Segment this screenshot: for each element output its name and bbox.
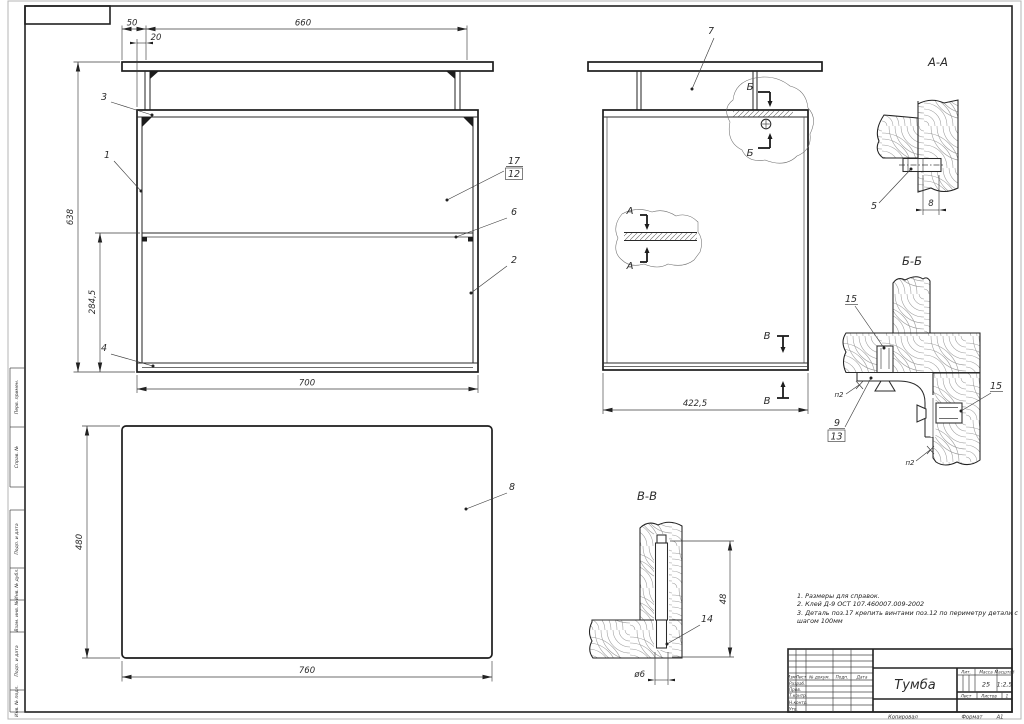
dim-422-5: 422,5 (683, 399, 707, 409)
dim-20: 20 (151, 33, 162, 43)
dim-660: 660 (295, 19, 311, 29)
callout-17: 17 (508, 156, 520, 167)
tb-header-massa: Масса (979, 670, 993, 675)
tb-value-massa: 25 (982, 681, 990, 689)
drawing-sheet: Перв. примен. Справ. № Подп. и дата Инв.… (0, 0, 1024, 724)
dim-50: 50 (127, 19, 138, 29)
callout-12: 12 (508, 169, 520, 180)
tb-header-podp: Подп. (836, 675, 849, 680)
section-aa-title: А-А (927, 55, 948, 69)
callout-5: 5 (871, 201, 877, 212)
callout-8: 8 (509, 482, 515, 493)
callout-15-right: 15 (990, 381, 1002, 392)
dim-480: 480 (75, 534, 85, 550)
margin-label-inv-dubl: Инв. № дубл. (14, 568, 20, 599)
glue-mark-label-bottom: п2 (905, 459, 915, 467)
tb-part-name: Тумба (894, 678, 935, 693)
tb-header-lit: Лит. (960, 670, 971, 675)
callout-15-top: 15 (845, 294, 857, 305)
dim-638: 638 (66, 208, 76, 225)
section-mark-v-top: В (764, 331, 771, 342)
callout-2: 2 (511, 255, 517, 266)
stamp-copied: Копировал (888, 715, 918, 721)
section-mark-a-bottom: А (626, 261, 634, 272)
tb-label-list2: Лист (960, 694, 972, 699)
tb-row-tkontr: Т.контр. (789, 693, 807, 698)
callout-4: 4 (101, 343, 107, 354)
dim-dia-6: ø6 (633, 670, 645, 680)
callout-3: 3 (101, 92, 107, 103)
tb-row-prov: Пров. (789, 687, 801, 692)
note-1: 1. Размеры для справок. (797, 592, 1019, 600)
callout-1: 1 (104, 150, 110, 161)
tb-header-masshtab: Масштаб (995, 670, 1015, 675)
dim-8: 8 (928, 199, 934, 209)
note-2: 2. Клей Д-9 ОСТ 107.460007.009-2002 (797, 600, 1019, 608)
margin-label-sprav: Справ. № (14, 446, 20, 469)
dim-760: 760 (299, 666, 315, 676)
section-vv-title: В-В (637, 489, 657, 503)
stamp-format-value: А1 (996, 715, 1004, 721)
dim-700: 700 (299, 379, 315, 389)
tb-row-utv: Утв. (789, 707, 798, 712)
callout-6: 6 (511, 207, 517, 218)
dim-284-5: 284,5 (88, 290, 98, 314)
technical-notes: 1. Размеры для справок. 2. Клей Д-9 ОСТ … (797, 592, 1019, 625)
section-mark-b-bottom: Б (747, 148, 754, 159)
callout-7: 7 (708, 26, 714, 37)
section-mark-b-top: Б (747, 82, 754, 93)
note-3: 3. Деталь поз.17 крепить винтами поз.12 … (797, 609, 1019, 626)
tb-row-razrab: Разраб. (789, 681, 805, 686)
callout-13: 13 (830, 432, 842, 443)
section-mark-a-top: А (626, 206, 634, 217)
tb-header-data: Дата (856, 675, 868, 680)
callout-14: 14 (701, 614, 713, 625)
section-mark-v-bottom: В (764, 396, 771, 407)
tb-row-nkontr: Н.контр. (789, 700, 808, 705)
stamp-format-label: Формат (961, 715, 983, 721)
margin-label-perv-primen: Перв. примен. (14, 380, 20, 415)
margin-label-podp-data-2: Подп. и дата (14, 645, 20, 676)
tb-label-listov: Листов (980, 694, 997, 699)
tb-value-listov: 1 (1006, 694, 1009, 699)
section-bb-title: Б-Б (902, 254, 922, 268)
glue-mark-label-left: п2 (834, 391, 844, 399)
margin-label-inv-podl: Инв. № подл. (14, 685, 20, 717)
margin-label-podp-data-1: Подп. и дата (14, 523, 20, 554)
tb-header-ndokum: № докум. (808, 675, 830, 680)
callout-9: 9 (834, 418, 840, 429)
dim-48: 48 (719, 593, 729, 604)
tb-value-masshtab: 1:2,5 (997, 682, 1013, 689)
margin-label-vzam: Взам. инв. № (14, 600, 20, 631)
tb-header-list: Лист (795, 675, 807, 680)
